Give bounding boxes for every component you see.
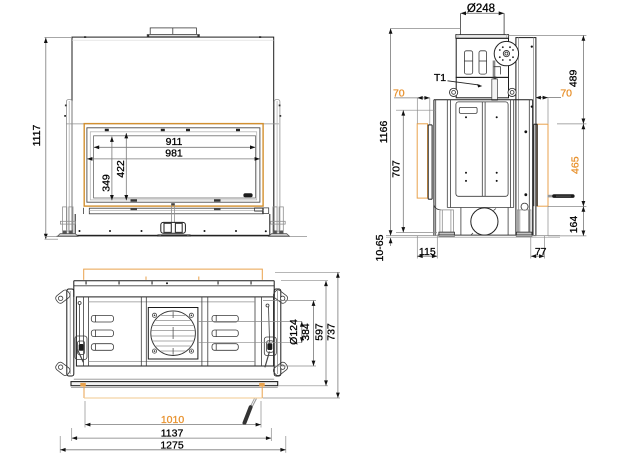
svg-text:1275: 1275 [160, 439, 184, 451]
svg-text:489: 489 [567, 69, 579, 87]
svg-text:164: 164 [568, 216, 580, 234]
svg-text:737: 737 [325, 323, 337, 341]
svg-text:70: 70 [560, 87, 572, 99]
svg-text:707: 707 [391, 160, 403, 178]
svg-text:1166: 1166 [378, 121, 390, 144]
svg-text:77: 77 [535, 246, 547, 258]
svg-text:981: 981 [165, 148, 183, 160]
svg-text:115: 115 [419, 246, 436, 258]
svg-text:1137: 1137 [161, 428, 184, 440]
svg-text:384: 384 [300, 323, 312, 341]
svg-text:10-65: 10-65 [374, 234, 386, 261]
svg-text:465: 465 [569, 156, 581, 174]
svg-text:1010: 1010 [161, 414, 185, 426]
svg-text:349: 349 [101, 174, 113, 192]
svg-text:911: 911 [166, 136, 183, 148]
svg-text:1117: 1117 [31, 124, 43, 146]
svg-text:Ø124: Ø124 [288, 319, 300, 345]
svg-text:597: 597 [313, 323, 325, 341]
svg-text:70: 70 [393, 88, 405, 100]
svg-text:T1: T1 [434, 72, 446, 84]
svg-text:Ø248: Ø248 [467, 3, 495, 15]
svg-text:422: 422 [115, 160, 127, 178]
